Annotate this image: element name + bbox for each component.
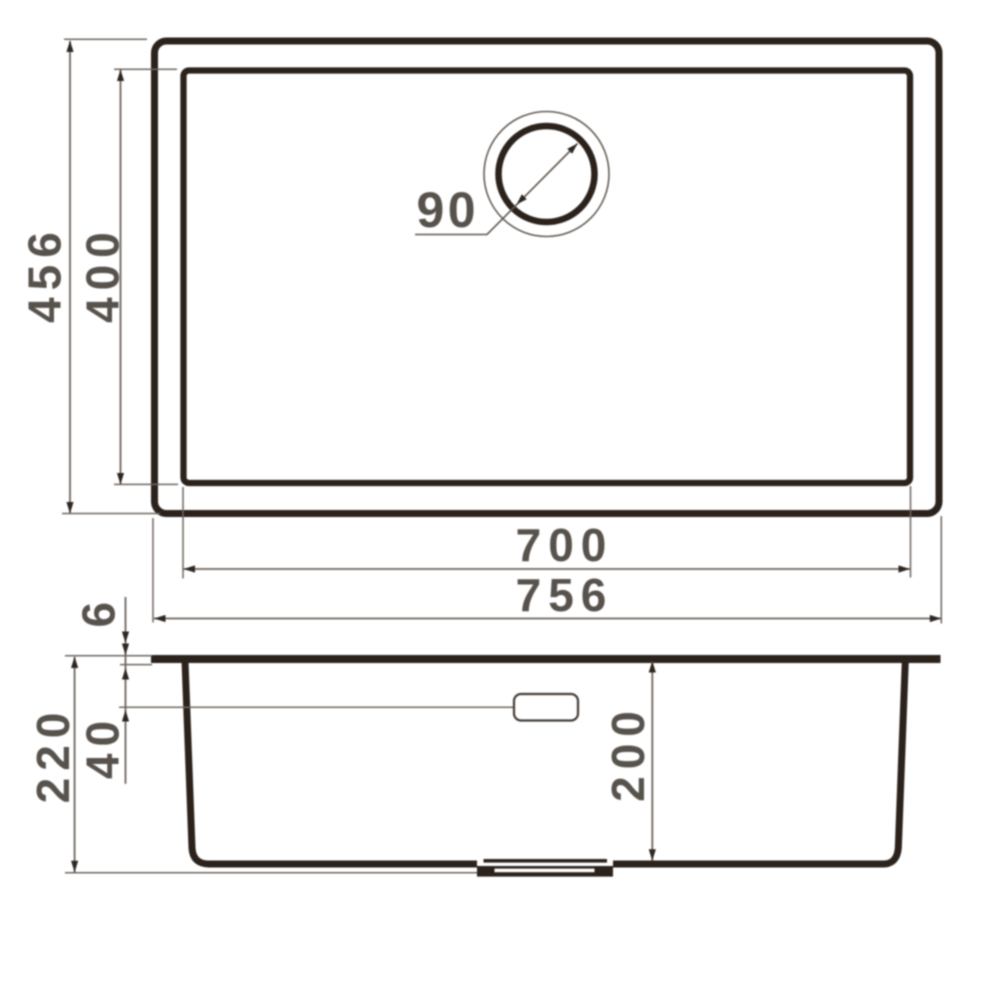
svg-text:400: 400 xyxy=(76,225,128,323)
svg-text:456: 456 xyxy=(18,225,70,323)
svg-text:90: 90 xyxy=(416,182,479,238)
svg-text:200: 200 xyxy=(602,704,654,802)
svg-text:220: 220 xyxy=(27,706,79,804)
svg-text:756: 756 xyxy=(516,569,614,621)
svg-text:6: 6 xyxy=(73,595,125,628)
svg-text:40: 40 xyxy=(77,714,129,779)
svg-text:700: 700 xyxy=(516,519,614,571)
